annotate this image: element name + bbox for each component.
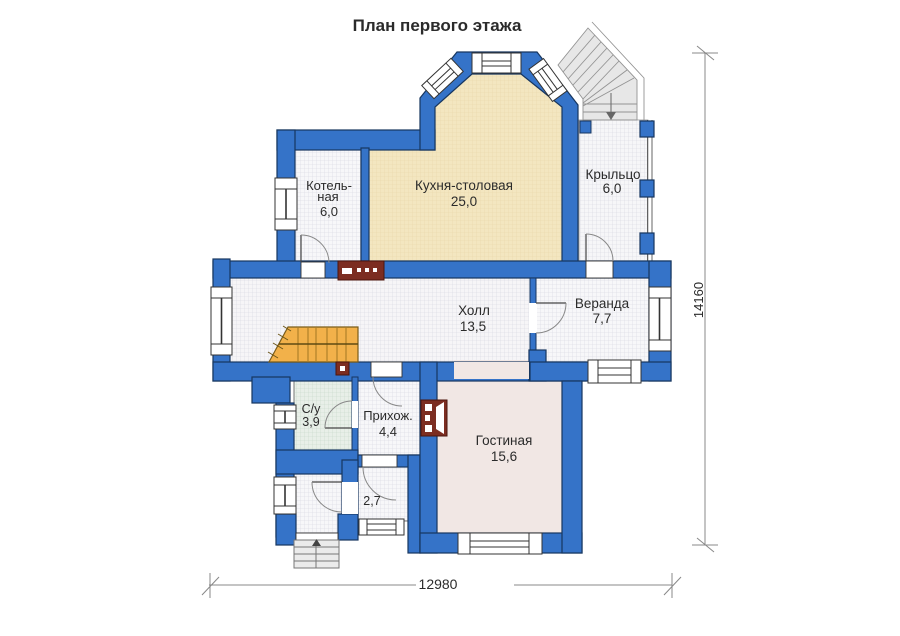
svg-text:Веранда: Веранда	[575, 296, 630, 311]
svg-text:6,0: 6,0	[603, 181, 622, 196]
svg-text:3,9: 3,9	[302, 415, 319, 429]
svg-text:С/у: С/у	[302, 402, 322, 416]
svg-text:4,4: 4,4	[379, 424, 397, 439]
svg-text:25,0: 25,0	[451, 194, 477, 209]
svg-text:2,7: 2,7	[363, 494, 380, 508]
svg-text:Холл: Холл	[458, 303, 490, 318]
svg-text:14160: 14160	[691, 282, 706, 318]
svg-text:План первого этажа: План первого этажа	[353, 16, 522, 35]
svg-text:7,7: 7,7	[593, 311, 612, 326]
svg-text:Прихож.: Прихож.	[363, 408, 413, 423]
svg-text:12980: 12980	[419, 576, 458, 592]
svg-text:15,6: 15,6	[491, 449, 517, 464]
svg-text:ная: ная	[317, 189, 338, 204]
svg-text:Крыльцо: Крыльцо	[585, 167, 640, 182]
svg-text:13,5: 13,5	[460, 319, 486, 334]
svg-text:Кухня-столовая: Кухня-столовая	[415, 178, 513, 193]
svg-text:6,0: 6,0	[320, 204, 338, 219]
svg-text:Гостиная: Гостиная	[476, 433, 533, 448]
